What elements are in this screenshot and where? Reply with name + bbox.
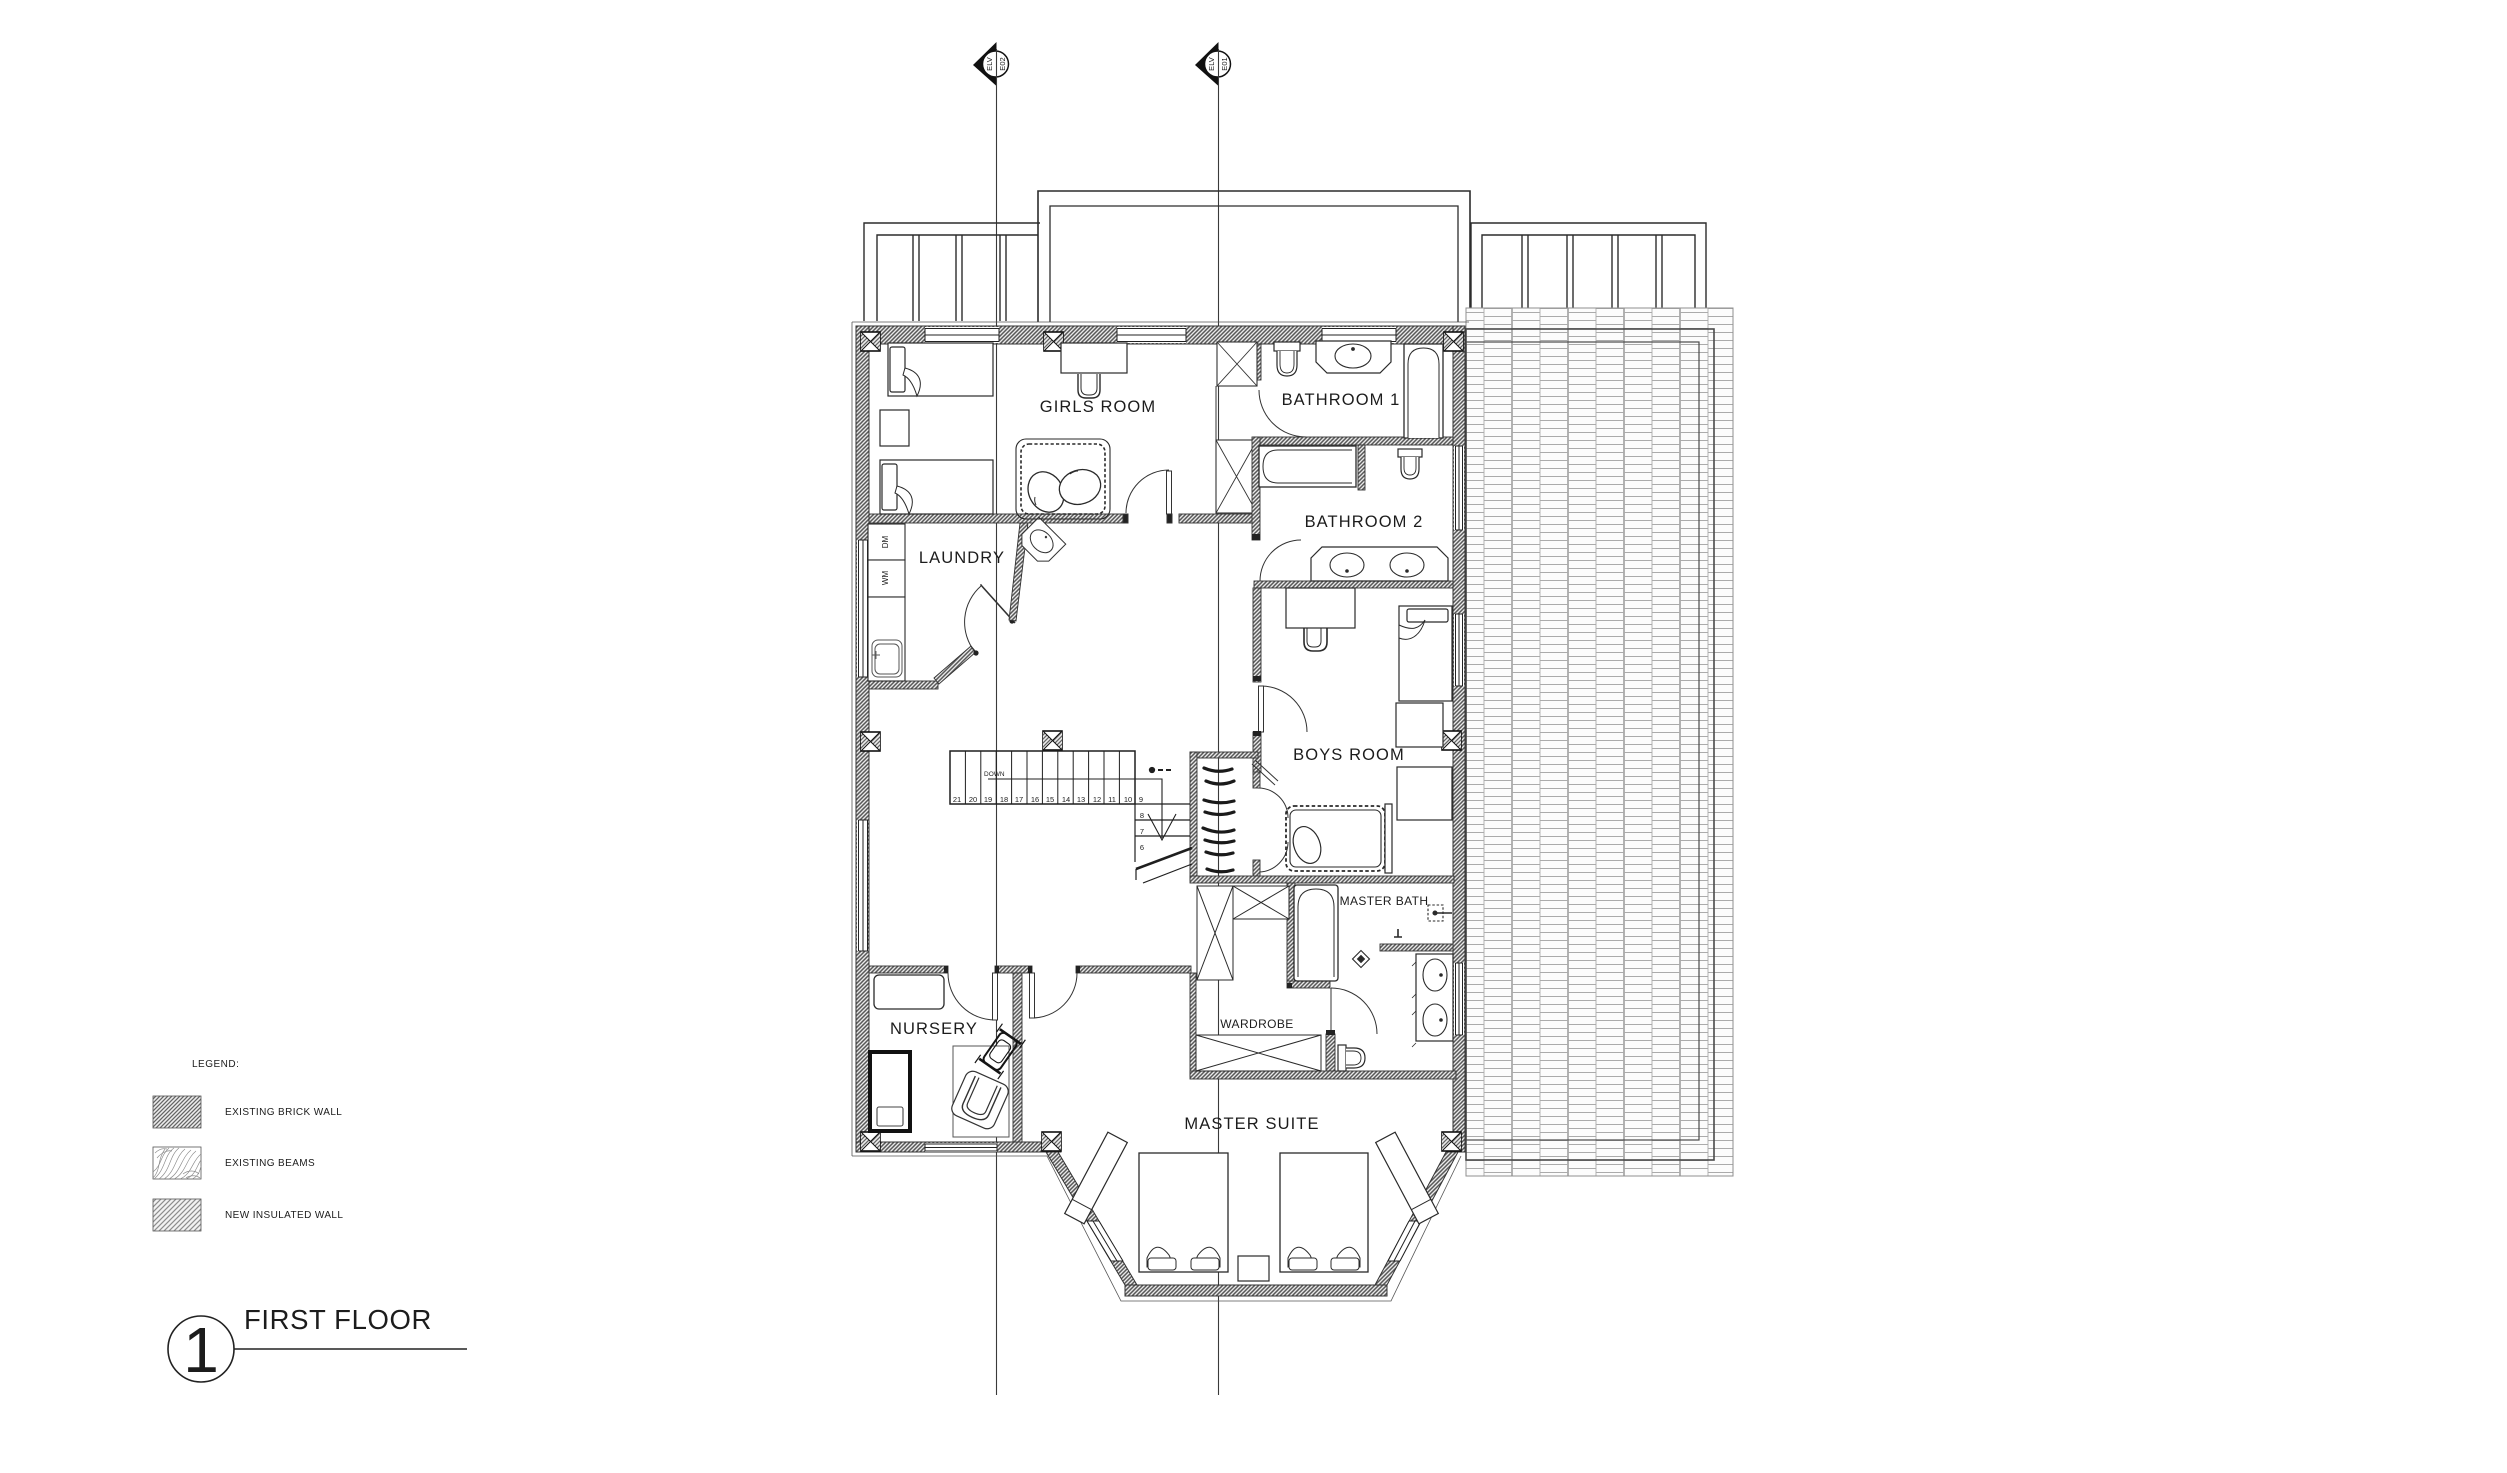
svg-text:NEW INSULATED WALL: NEW INSULATED WALL: [225, 1210, 343, 1221]
svg-text:DM: DM: [881, 535, 890, 548]
svg-text:10: 10: [1124, 795, 1132, 804]
svg-text:MASTER BATH: MASTER BATH: [1340, 894, 1429, 908]
svg-text:ELV: ELV: [985, 57, 994, 71]
svg-text:E02: E02: [998, 57, 1007, 70]
svg-text:BATHROOM 2: BATHROOM 2: [1305, 513, 1424, 531]
svg-text:NURSERY: NURSERY: [890, 1020, 978, 1038]
svg-text:11: 11: [1108, 795, 1116, 804]
svg-text:EXISTING BRICK WALL: EXISTING BRICK WALL: [225, 1107, 342, 1118]
svg-text:17: 17: [1015, 795, 1023, 804]
svg-text:7: 7: [1140, 827, 1144, 836]
svg-text:15: 15: [1046, 795, 1054, 804]
svg-text:9: 9: [1139, 795, 1143, 804]
svg-text:13: 13: [1077, 795, 1085, 804]
svg-text:E01: E01: [1220, 57, 1229, 70]
svg-text:12: 12: [1093, 795, 1101, 804]
svg-text:BATHROOM 1: BATHROOM 1: [1282, 391, 1401, 409]
svg-text:FIRST FLOOR: FIRST FLOOR: [244, 1304, 432, 1335]
svg-text:14: 14: [1062, 795, 1070, 804]
svg-text:6: 6: [1140, 843, 1144, 852]
svg-text:18: 18: [1000, 795, 1008, 804]
svg-text:DOWN: DOWN: [984, 771, 1005, 778]
svg-text:8: 8: [1140, 811, 1144, 820]
svg-text:16: 16: [1031, 795, 1039, 804]
svg-text:19: 19: [984, 795, 992, 804]
svg-text:LEGEND:: LEGEND:: [192, 1059, 239, 1070]
svg-text:20: 20: [969, 795, 977, 804]
svg-text:MASTER SUITE: MASTER SUITE: [1184, 1115, 1319, 1133]
svg-text:WM: WM: [881, 571, 890, 586]
svg-text:EXISTING BEAMS: EXISTING BEAMS: [225, 1158, 315, 1169]
svg-text:WARDROBE: WARDROBE: [1220, 1017, 1293, 1031]
svg-text:1: 1: [183, 1314, 219, 1386]
svg-text:BOYS ROOM: BOYS ROOM: [1293, 746, 1405, 764]
svg-text:LAUNDRY: LAUNDRY: [919, 549, 1005, 567]
svg-text:ELV: ELV: [1207, 57, 1216, 71]
svg-text:GIRLS ROOM: GIRLS ROOM: [1040, 398, 1156, 416]
svg-text:21: 21: [953, 795, 961, 804]
